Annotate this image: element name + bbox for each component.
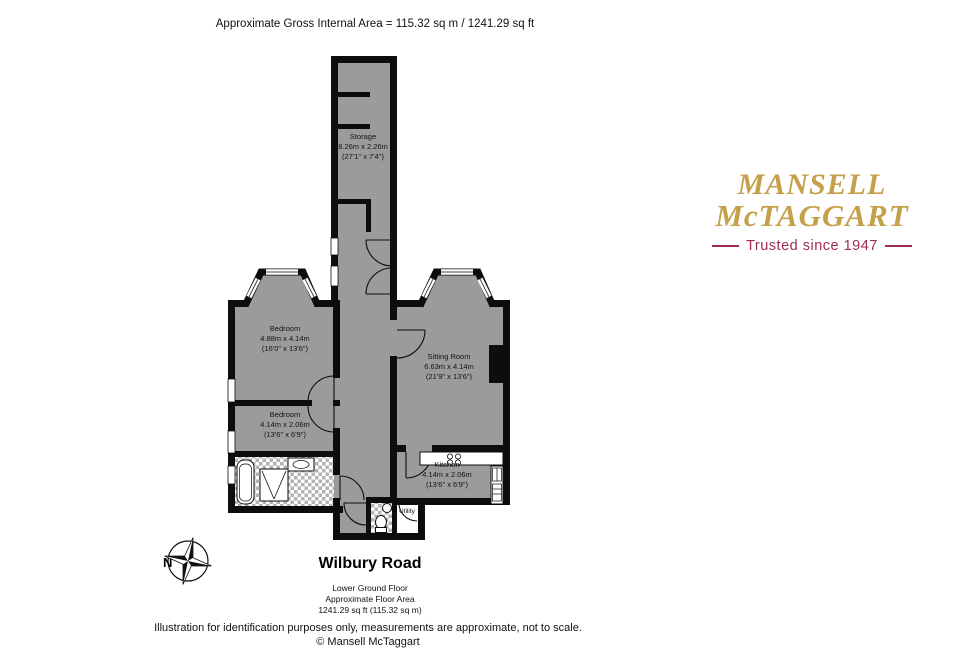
floor-info: Lower Ground Floor Approximate Floor Are… <box>240 583 500 616</box>
kitchen-label: Kitchen <box>434 460 459 469</box>
bedroom2-dims-metric: 4.14m x 2.06m <box>260 420 310 429</box>
kitchen-dims-imperial: (13'6" x 6'9") <box>426 480 468 489</box>
bedroom2-label: Bedroom <box>270 410 300 419</box>
bedroom1-label: Bedroom <box>270 324 300 333</box>
bedroom1-dims-metric: 4.88m x 4.14m <box>260 334 310 343</box>
bedroom2-dims-imperial: (13'6" x 6'9") <box>264 430 306 439</box>
bathroom-sink <box>288 458 314 471</box>
toilet <box>376 516 387 529</box>
wc-sink <box>383 504 392 513</box>
floor-area-label: Approximate Floor Area <box>240 594 500 605</box>
storage-dims-imperial: (27'1" x 7'4") <box>342 152 384 161</box>
street-title: Wilbury Road <box>240 555 500 573</box>
storage-label: Storage <box>350 132 376 141</box>
footer-disclaimer-block: Illustration for identification purposes… <box>118 621 618 649</box>
sitting-room-dims-imperial: (21'9" x 13'6") <box>426 372 473 381</box>
floor-area-value: 1241.29 sq ft (115.32 sq m) <box>240 605 500 616</box>
utility-label: Utility <box>399 508 416 515</box>
copyright-text: © Mansell McTaggart <box>118 635 618 649</box>
sitting-room-dims-metric: 6.63m x 4.14m <box>424 362 474 371</box>
storage-dims-metric: 8.26m x 2.26m <box>338 142 388 151</box>
disclaimer-text: Illustration for identification purposes… <box>118 621 618 635</box>
compass: N <box>163 538 212 585</box>
kitchen-counter <box>420 452 503 465</box>
bedroom1-dims-imperial: (16'0" x 13'6") <box>262 344 309 353</box>
shower <box>260 469 288 501</box>
floorplan-page: Approximate Gross Internal Area = 115.32… <box>0 0 980 653</box>
floor-name: Lower Ground Floor <box>240 583 500 594</box>
kitchen-dims-metric: 4.14m x 2.06m <box>422 470 472 479</box>
sitting-room-label: Sitting Room <box>428 352 471 361</box>
